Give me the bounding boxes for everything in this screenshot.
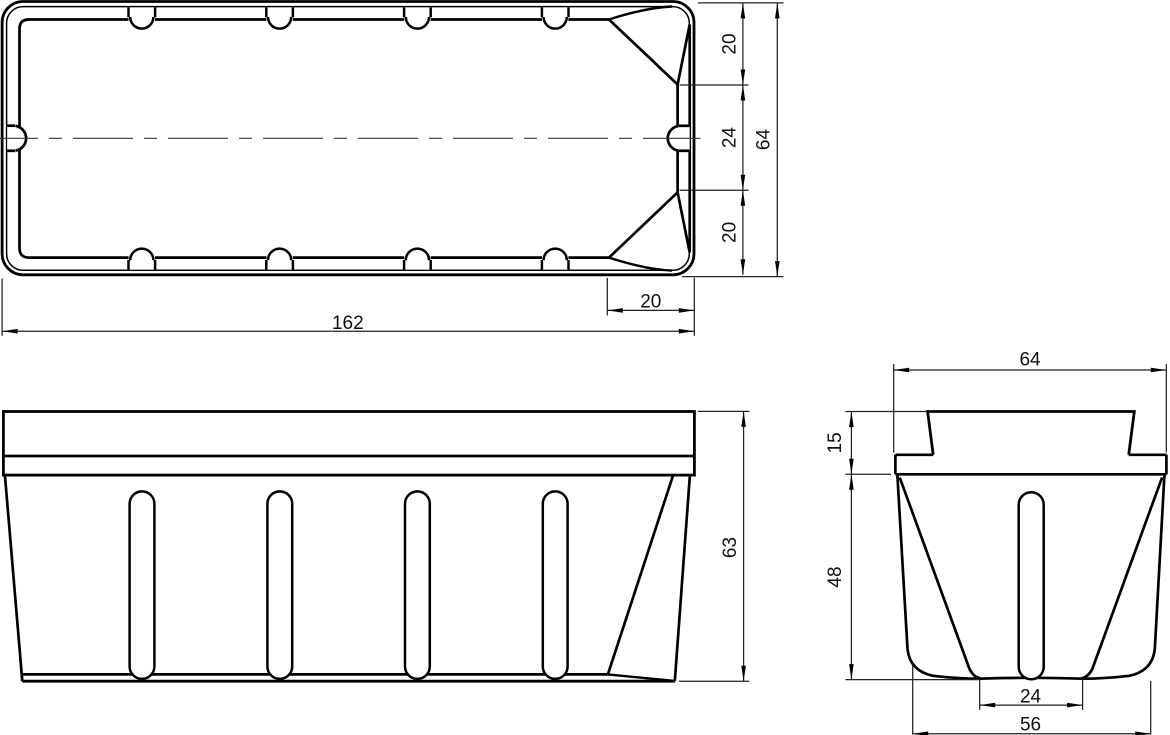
svg-text:64: 64 xyxy=(1019,350,1041,371)
svg-text:64: 64 xyxy=(754,129,775,151)
svg-text:20: 20 xyxy=(719,33,740,54)
svg-text:24: 24 xyxy=(719,127,740,149)
svg-text:15: 15 xyxy=(825,432,846,453)
svg-text:48: 48 xyxy=(825,566,846,587)
svg-text:56: 56 xyxy=(1020,714,1041,735)
svg-text:20: 20 xyxy=(719,222,740,243)
svg-text:20: 20 xyxy=(640,291,661,312)
svg-text:162: 162 xyxy=(332,313,364,334)
svg-text:24: 24 xyxy=(1020,686,1042,707)
svg-text:63: 63 xyxy=(720,537,741,558)
